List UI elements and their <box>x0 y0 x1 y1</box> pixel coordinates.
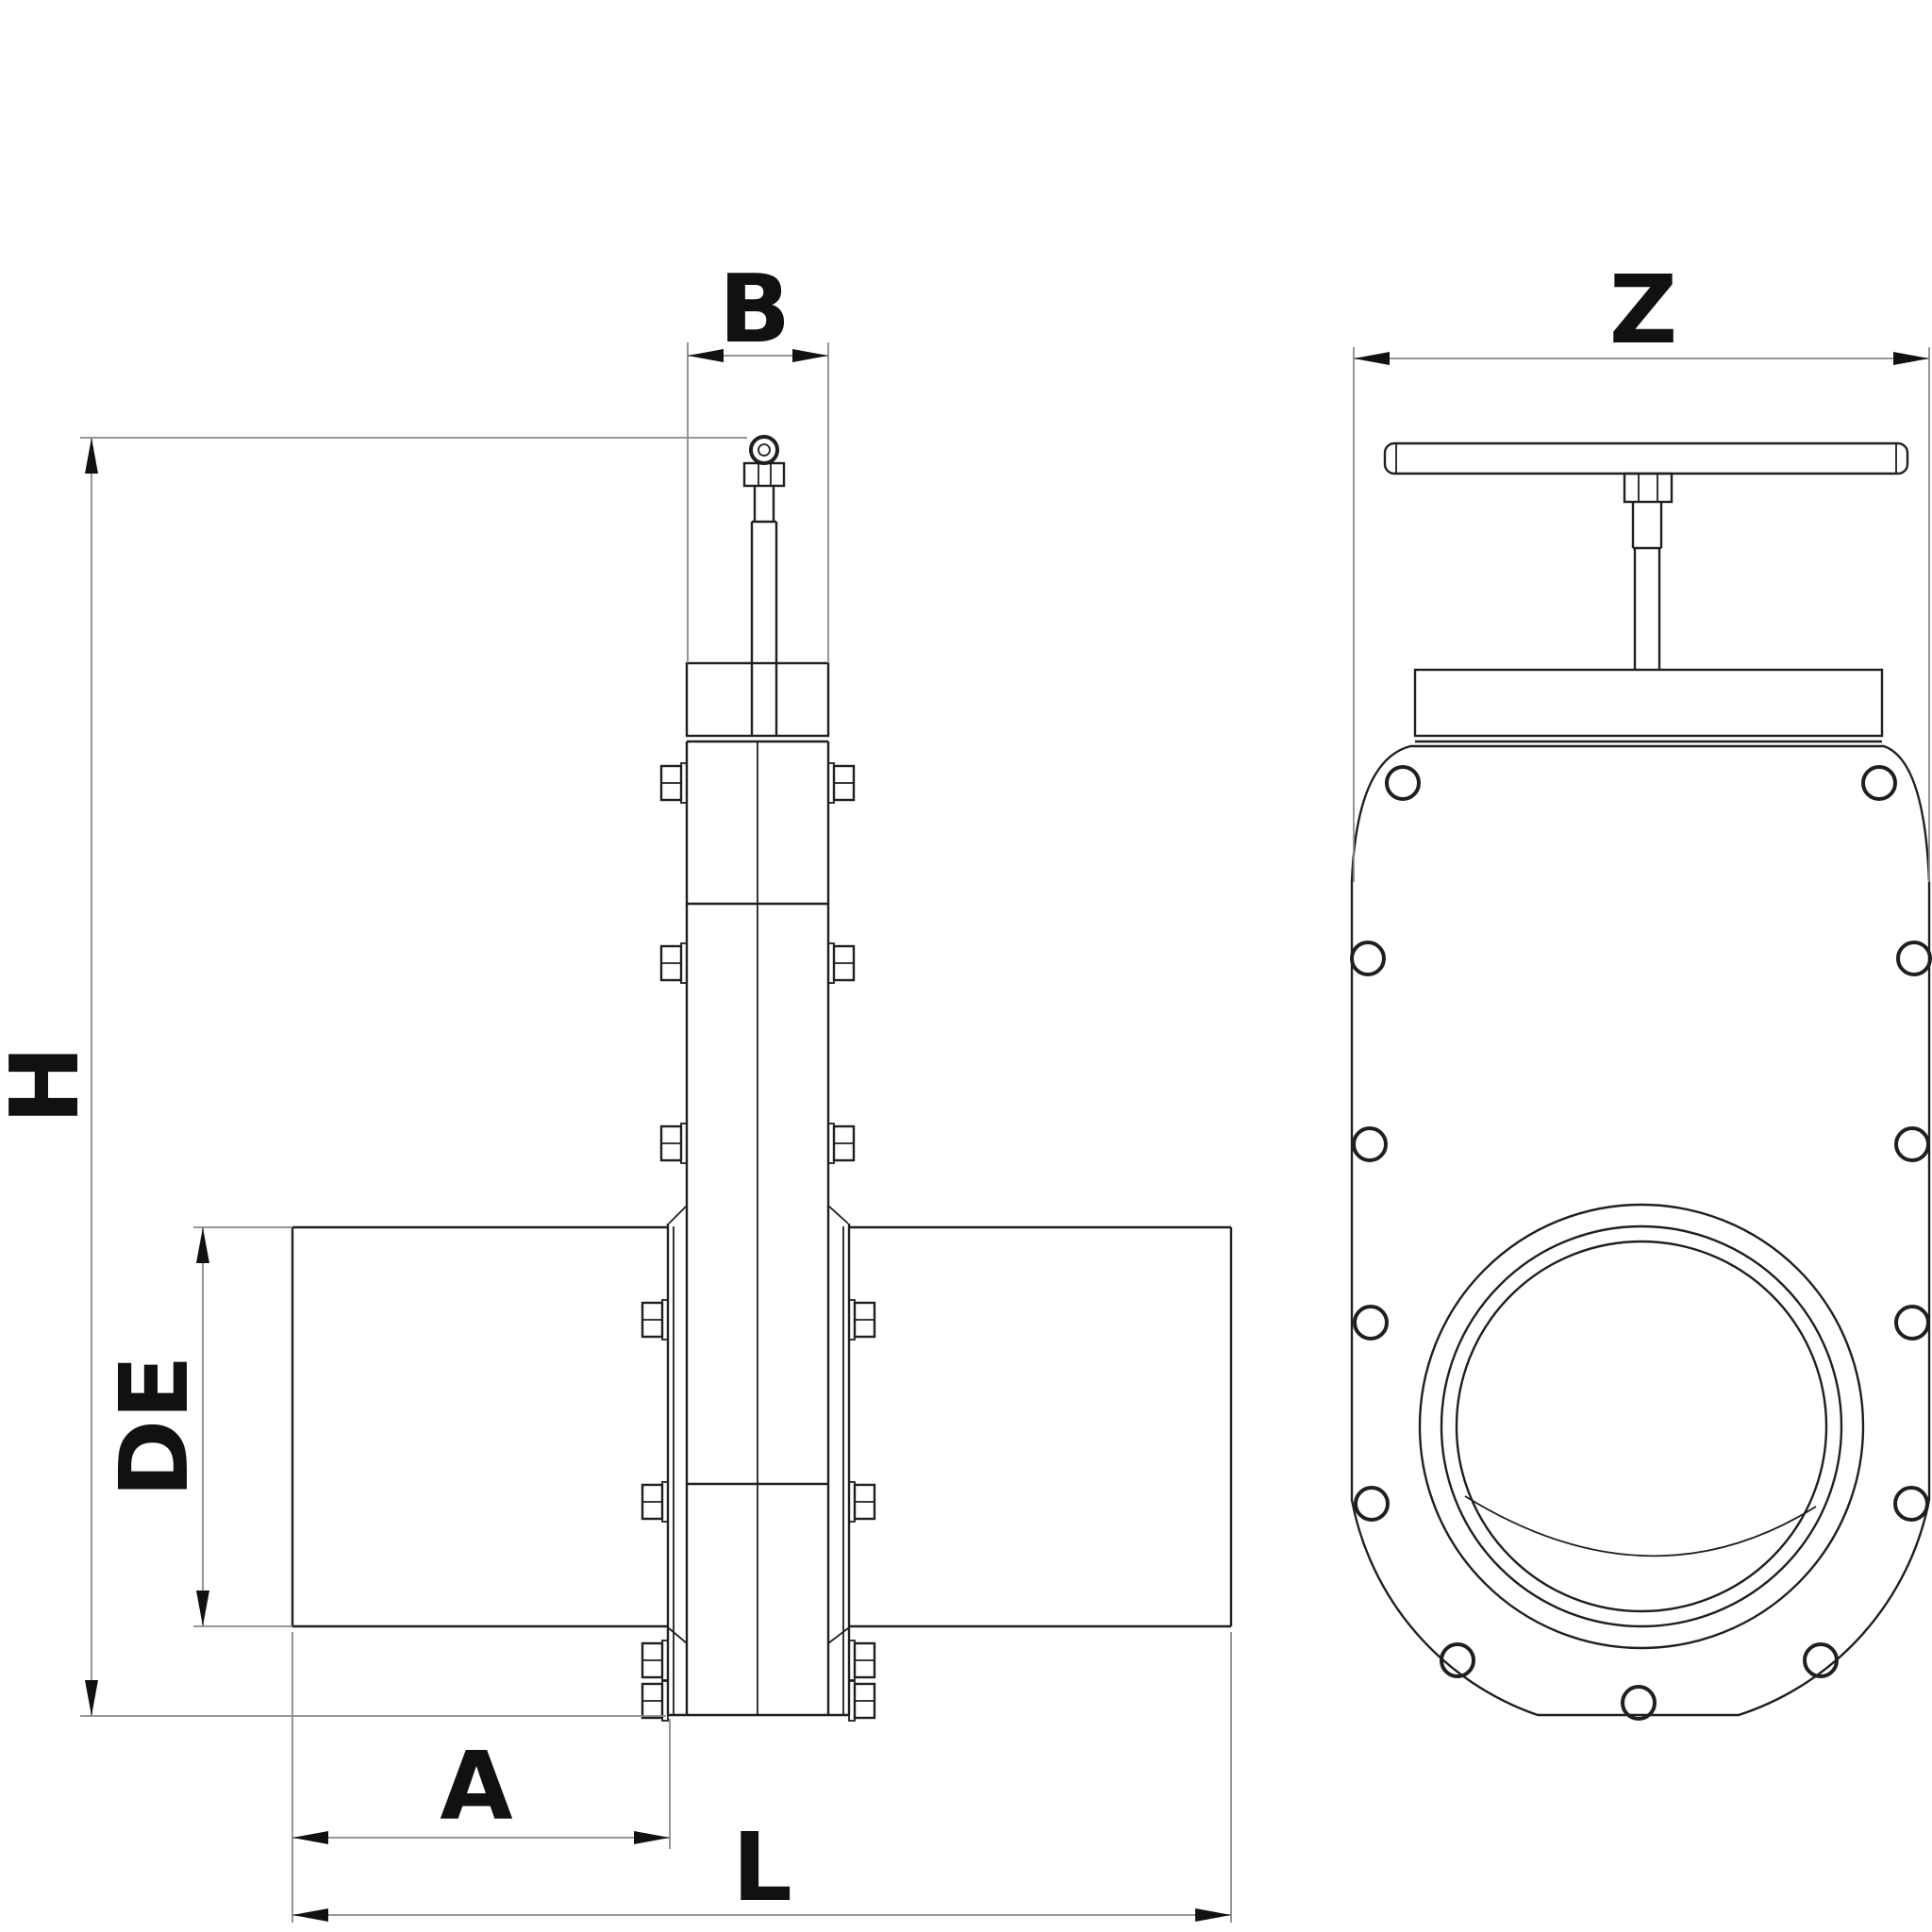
stem <box>752 486 776 736</box>
dim-label-H: H <box>0 1045 100 1124</box>
dim-label-A: A <box>440 1731 512 1841</box>
handwheel-bar <box>1385 443 1907 474</box>
side-view <box>292 437 1231 1721</box>
eye-bolt-icon <box>751 437 777 463</box>
dimensions: B Z H DE <box>0 254 1929 1923</box>
bonnet-front <box>1415 670 1882 741</box>
valve-body-side <box>668 741 849 1715</box>
dim-A: A <box>292 1632 670 1923</box>
gate-edge-arc <box>1465 1496 1816 1556</box>
pipe-left <box>292 1227 668 1626</box>
bolts-lower <box>642 1300 874 1721</box>
dim-H: H <box>0 438 747 1716</box>
bolt-holes <box>1352 767 1930 1719</box>
dim-label-B: B <box>719 254 791 364</box>
dim-B: B <box>688 254 828 663</box>
front-view <box>1352 443 1930 1719</box>
bonnet-side <box>687 663 828 741</box>
dim-label-Z: Z <box>1609 255 1678 365</box>
dim-Z: Z <box>1354 255 1929 882</box>
bolt-pair <box>642 1300 874 1340</box>
pipe-right <box>849 1227 1231 1626</box>
bore <box>1420 1205 1863 1648</box>
bolt-pair <box>642 1641 874 1680</box>
dim-DE: DE <box>99 1227 292 1626</box>
stem-nut <box>744 463 784 486</box>
stem-front <box>1624 474 1672 670</box>
valve-body-front <box>1352 746 1929 1715</box>
dim-label-DE: DE <box>99 1355 209 1497</box>
drawing-canvas: B Z H DE <box>0 0 1932 1932</box>
dim-label-L: L <box>732 1812 792 1923</box>
dim-L: L <box>292 1632 1231 1923</box>
valve-technical-drawing: B Z H DE <box>0 0 1932 1932</box>
bolt-pair <box>642 1482 874 1522</box>
